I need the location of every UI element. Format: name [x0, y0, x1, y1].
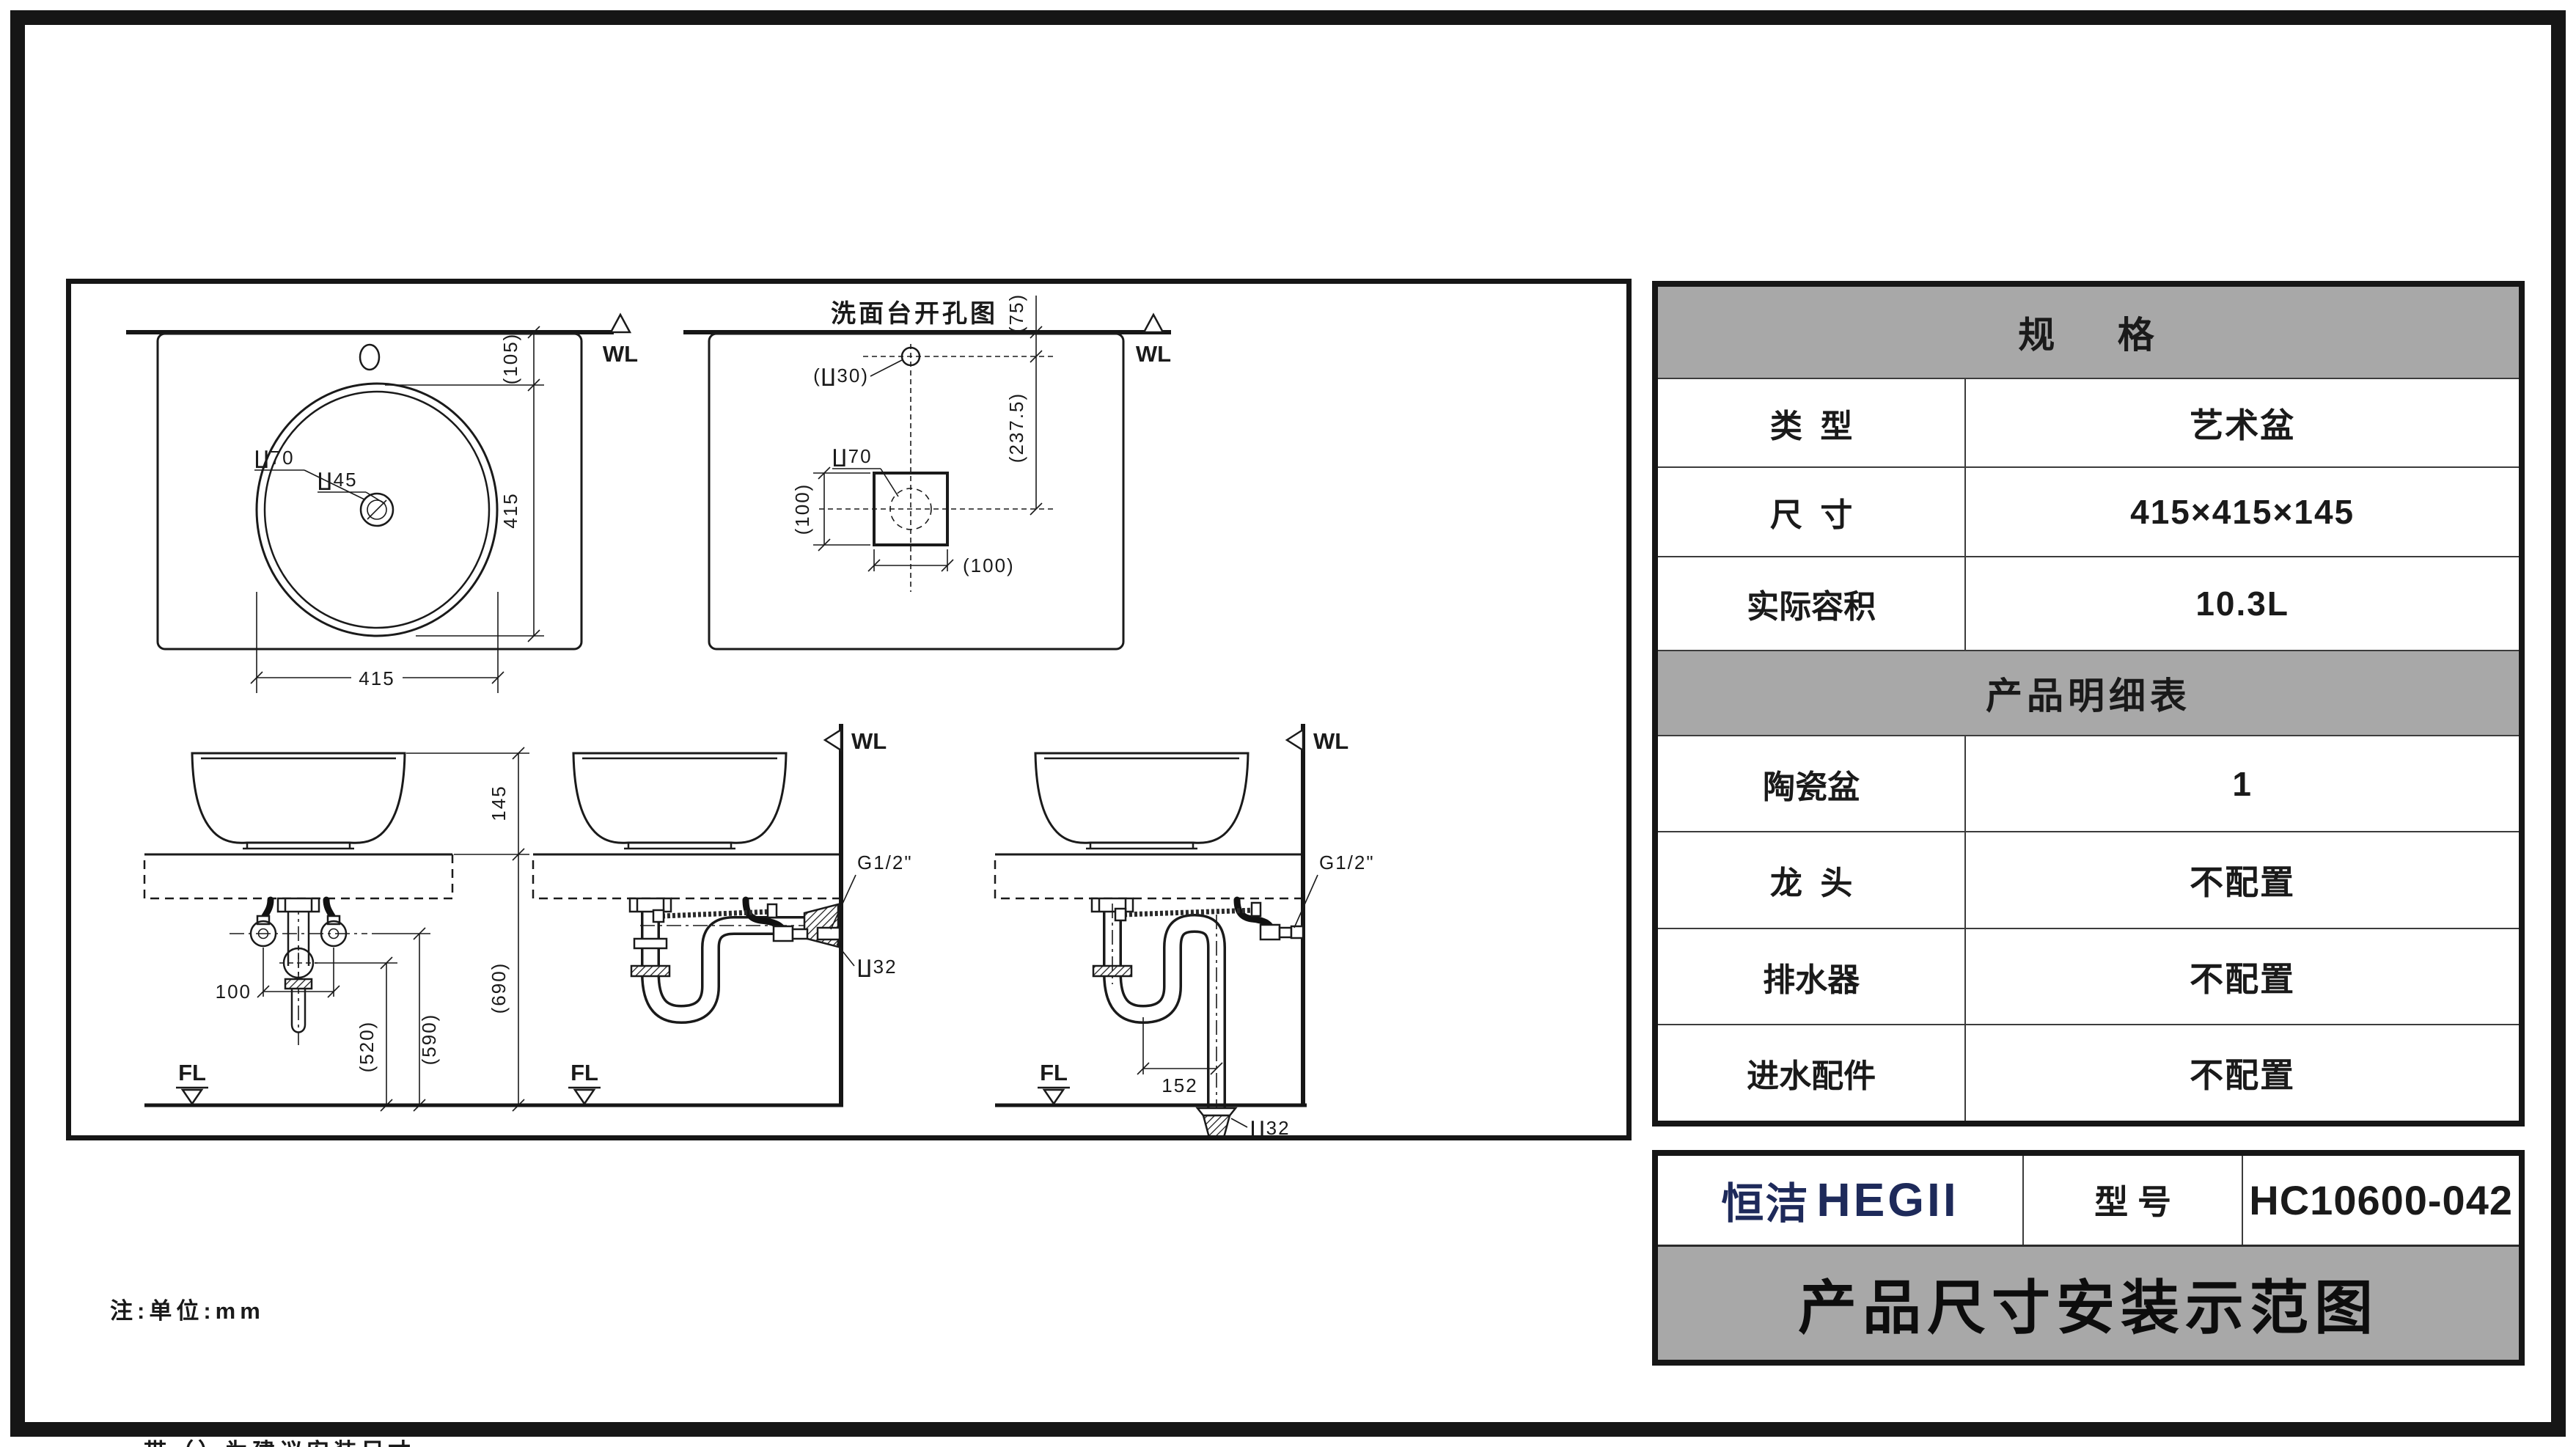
title-block-top-row: 恒洁 HEGII 型 号 HC10600-042 — [1658, 1156, 2519, 1245]
model-value: HC10600-042 — [2243, 1156, 2519, 1245]
spec-label-size: 尺 寸 — [1658, 468, 1966, 556]
fl-marker-icon — [183, 1090, 202, 1104]
dim-152: 152 — [1162, 1074, 1197, 1096]
detail-row-inlet: 进水配件 不配置 — [1658, 1024, 2519, 1121]
title-block: 恒洁 HEGII 型 号 HC10600-042 产品尺寸安装示范图 — [1652, 1150, 2525, 1366]
detail-row-basin: 陶瓷盆 1 — [1658, 735, 2519, 832]
detail-header: 产品明细表 — [1658, 650, 2519, 735]
wl-marker-icon — [611, 315, 630, 332]
wl-marker-icon — [1287, 730, 1303, 750]
front-view: 100 (520) (590) 145 — [144, 747, 540, 1111]
g12-label: G1/2" — [1319, 851, 1375, 873]
fl-label: FL — [570, 1060, 598, 1085]
note-line-1: 注:单位:mm — [110, 1288, 670, 1335]
dim-520: (520) — [356, 1021, 378, 1073]
detail-value-faucet: 不配置 — [1966, 832, 2519, 928]
g12-label: G1/2" — [857, 851, 913, 873]
dia32-label: ∐32 — [857, 956, 898, 978]
spec-header: 规 格 — [1658, 287, 2519, 378]
detail-row-faucet: 龙 头 不配置 — [1658, 831, 2519, 928]
dia30-label: (∐30) — [813, 365, 869, 387]
dim-105: (105) — [499, 333, 521, 385]
dim-100: 100 — [216, 981, 252, 1003]
detail-value-basin: 1 — [1966, 736, 2519, 832]
fl-marker-icon — [1044, 1090, 1063, 1104]
dim-75: (75) — [1005, 293, 1027, 333]
cutout-title: 洗面台开孔图 — [831, 300, 998, 328]
wl-label: WL — [1136, 341, 1171, 367]
dim-100-h: (100) — [963, 554, 1015, 576]
notes: 注:单位:mm 带（）为建议安装尺寸 规格尺寸仅供参考,工程作业时请以实物为准 — [110, 1194, 670, 1447]
spec-row-size: 尺 寸 415×415×145 — [1658, 466, 2519, 556]
dia70-label: ∐70 — [254, 447, 295, 469]
brand-logo-cn: 恒洁 — [1721, 1169, 1809, 1231]
note-line-2: 带（）为建议安装尺寸 — [110, 1429, 670, 1447]
wl-label: WL — [851, 728, 887, 754]
top-view: WL ∐70 ∐45 — [126, 315, 638, 693]
wl-marker-icon — [825, 730, 841, 750]
spec-label-capacity: 实际容积 — [1658, 557, 1966, 650]
page: WL ∐70 ∐45 — [0, 0, 2576, 1447]
side-view-floor-drain: WL ∐32 152 — [995, 724, 1375, 1135]
installation-drawing: WL ∐70 ∐45 — [71, 284, 1626, 1135]
fl-marker-icon — [575, 1090, 594, 1104]
dim-415-v: 415 — [499, 492, 521, 528]
detail-label-inlet: 进水配件 — [1658, 1025, 1966, 1121]
dia70-label: ∐70 — [832, 445, 873, 467]
spec-value-capacity: 10.3L — [1966, 557, 2519, 650]
fl-label: FL — [178, 1060, 206, 1085]
model-label: 型 号 — [2024, 1156, 2243, 1245]
drawing-panel: WL ∐70 ∐45 — [66, 279, 1632, 1140]
dim-237-5: (237.5) — [1005, 392, 1027, 463]
cutout-view: 洗面台开孔图 WL (∐30) ∐70 — [683, 293, 1171, 649]
detail-row-drain: 排水器 不配置 — [1658, 928, 2519, 1025]
dim-690: (690) — [488, 962, 510, 1014]
spec-row-type: 类 型 艺术盆 — [1658, 378, 2519, 467]
doc-title: 产品尺寸安装示范图 — [1658, 1245, 2519, 1360]
spec-value-size: 415×415×145 — [1966, 468, 2519, 556]
dim-415-h: 415 — [359, 667, 395, 689]
dim-145: 145 — [488, 785, 510, 821]
detail-label-basin: 陶瓷盆 — [1658, 736, 1966, 832]
detail-label-drain: 排水器 — [1658, 929, 1966, 1025]
dia45-label: ∐45 — [318, 469, 358, 491]
fl-label: FL — [1040, 1060, 1068, 1085]
spec-value-type: 艺术盆 — [1966, 379, 2519, 467]
brand-logo: 恒洁 HEGII — [1658, 1156, 2024, 1245]
brand-logo-en: HEGII — [1816, 1173, 1959, 1227]
detail-label-faucet: 龙 头 — [1658, 832, 1966, 928]
spec-label-type: 类 型 — [1658, 379, 1966, 467]
wl-label: WL — [1313, 728, 1348, 754]
wl-marker-icon — [1144, 315, 1163, 332]
side-view-wall-drain: WL ∐32 G1/2" — [533, 724, 913, 1105]
detail-value-drain: 不配置 — [1966, 929, 2519, 1025]
spec-row-capacity: 实际容积 10.3L — [1658, 556, 2519, 650]
wl-label: WL — [603, 341, 638, 367]
dim-100-v: (100) — [791, 483, 813, 535]
dim-590: (590) — [418, 1014, 440, 1066]
dia32-label: ∐32 — [1250, 1117, 1291, 1135]
spec-table: 规 格 类 型 艺术盆 尺 寸 415×415×145 实际容积 10.3L 产… — [1652, 281, 2525, 1127]
detail-value-inlet: 不配置 — [1966, 1025, 2519, 1121]
